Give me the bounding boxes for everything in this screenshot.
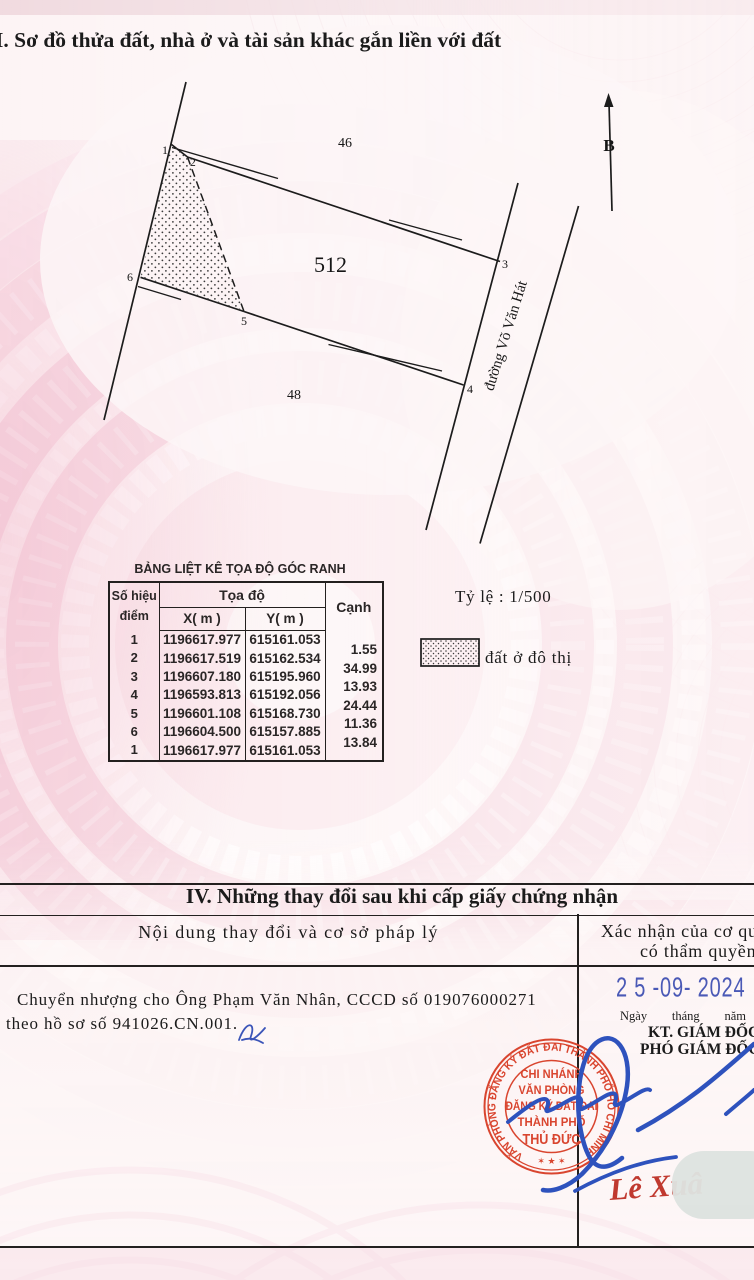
svg-text:CHI NHÁNH: CHI NHÁNH xyxy=(521,1068,583,1081)
svg-text:THỦ ĐỨC: THỦ ĐỨC xyxy=(523,1130,581,1148)
svg-text:VĂN PHÒNG: VĂN PHÒNG xyxy=(519,1084,585,1097)
svg-text:THÀNH PHỐ: THÀNH PHỐ xyxy=(518,1115,586,1129)
svg-text:✶ ★ ✶: ✶ ★ ✶ xyxy=(537,1156,565,1166)
